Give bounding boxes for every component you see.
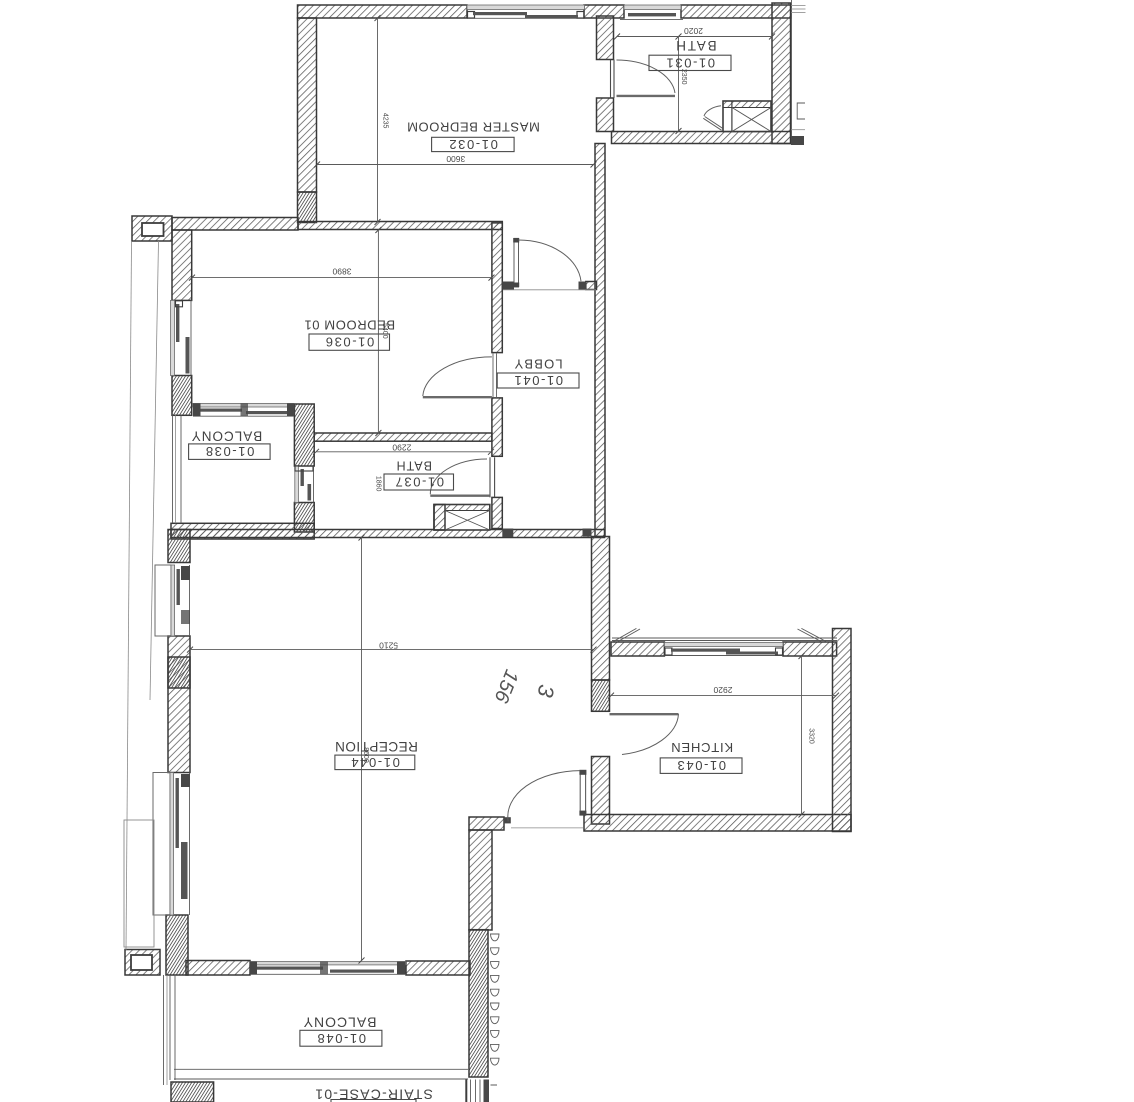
svg-text:3320: 3320 [808,728,815,744]
svg-text:3890: 3890 [332,266,351,276]
svg-text:BEDROOM 01: BEDROOM 01 [304,318,395,333]
svg-text:01-044: 01-044 [350,755,400,770]
svg-text:01-037: 01-037 [394,475,444,490]
svg-text:2020: 2020 [684,26,703,36]
svg-text:MASTER BEDROOM: MASTER BEDROOM [407,120,540,135]
svg-text:KITCHEN: KITCHEN [670,740,733,755]
svg-text:01-041: 01-041 [513,373,563,388]
svg-text:BALCONY: BALCONY [191,429,263,444]
svg-text:BATH: BATH [674,38,716,53]
svg-text:4235: 4235 [382,113,389,129]
svg-text:5210: 5210 [379,640,398,650]
svg-text:01-032: 01-032 [448,137,498,152]
svg-text:2290: 2290 [392,442,411,452]
svg-text:2920: 2920 [713,685,732,695]
svg-text:1860: 1860 [375,476,382,492]
svg-text:01-048: 01-048 [316,1031,366,1046]
svg-text:RECEPTION: RECEPTION [335,739,418,754]
svg-text:01-036: 01-036 [324,335,374,350]
svg-text:LOBBY: LOBBY [513,357,562,372]
svg-text:01-038: 01-038 [204,444,254,459]
svg-text:BATH: BATH [396,459,432,473]
svg-text:01-031: 01-031 [665,56,715,71]
svg-text:BALCONY: BALCONY [303,1014,377,1030]
svg-text:01-043: 01-043 [676,758,726,773]
svg-text:3600: 3600 [446,154,465,164]
